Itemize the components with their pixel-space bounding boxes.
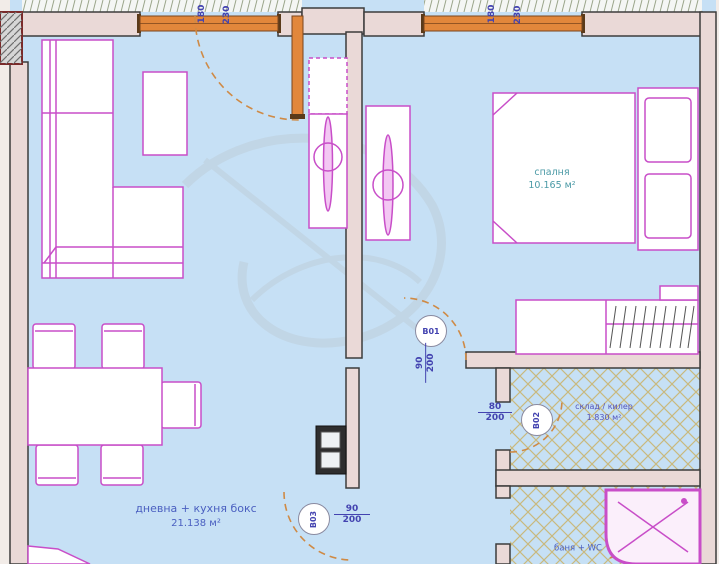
wall-storage-bath-divider [496, 470, 700, 486]
door-size-b02: 80 200 [478, 402, 512, 424]
insulation-hatch-left [22, 0, 302, 12]
door-size-b01: 90 200 [415, 343, 437, 383]
door-badge-b02: B02 [521, 404, 553, 436]
bedroom-low-wardrobe [516, 286, 698, 354]
wall-bedroom-top-right [582, 12, 702, 36]
living-room-area: 21.138 м² [135, 517, 256, 531]
window1-width-label: 180 [197, 5, 207, 24]
wall-top-left [22, 12, 140, 36]
wall-storage-west-upper [496, 368, 510, 402]
pillow [645, 174, 691, 238]
living-room-label: дневна + кухня бокс 21.138 м² [135, 502, 256, 530]
wall-bedroom-top-left [364, 12, 424, 36]
storage-area: 1.830 м² [575, 413, 633, 424]
storage-label: склад / килер 1.830 м² [575, 402, 633, 424]
bedroom-area: 10.165 м² [528, 180, 575, 193]
wall-top-center [302, 8, 364, 34]
ventilation-shaft [316, 426, 346, 474]
storage-name: склад / килер [575, 402, 633, 413]
wall-left [10, 62, 28, 564]
bedroom-name: спалня [528, 167, 575, 180]
insulation-hatch-right [424, 0, 702, 12]
shower [606, 490, 700, 564]
pillow [645, 98, 691, 162]
window1-height-label: 230 [222, 6, 232, 25]
living-room-name: дневна + кухня бокс [135, 502, 256, 517]
bedroom-wardrobe [366, 106, 410, 240]
column-top-left [0, 12, 22, 64]
wall-center-vertical [346, 32, 362, 358]
bedroom-label: спалня 10.165 м² [528, 167, 575, 193]
wall-bath-west-lower [496, 544, 510, 564]
dining-table [28, 368, 162, 445]
wall-right [700, 12, 716, 564]
bath-label: баня + WC [554, 543, 602, 554]
floor-plan: дневна + кухня бокс 21.138 м² спалня 10.… [0, 0, 719, 564]
wall-bath-west-upper [496, 486, 510, 498]
hall-wardrobe [309, 58, 347, 228]
bath-name: баня + WC [554, 543, 602, 554]
door-badge-b03: B03 [298, 503, 330, 535]
entry-door-leaf [292, 16, 303, 116]
kitchen-counter [28, 546, 90, 564]
window2-height-label: 230 [513, 6, 523, 25]
floor-plan-drawing [0, 0, 719, 564]
window2-width-label: 180 [487, 5, 497, 24]
door-size-b03: 90 200 [334, 504, 370, 526]
wall-center-lower [346, 368, 359, 488]
side-table [143, 72, 187, 155]
bed [493, 88, 698, 250]
